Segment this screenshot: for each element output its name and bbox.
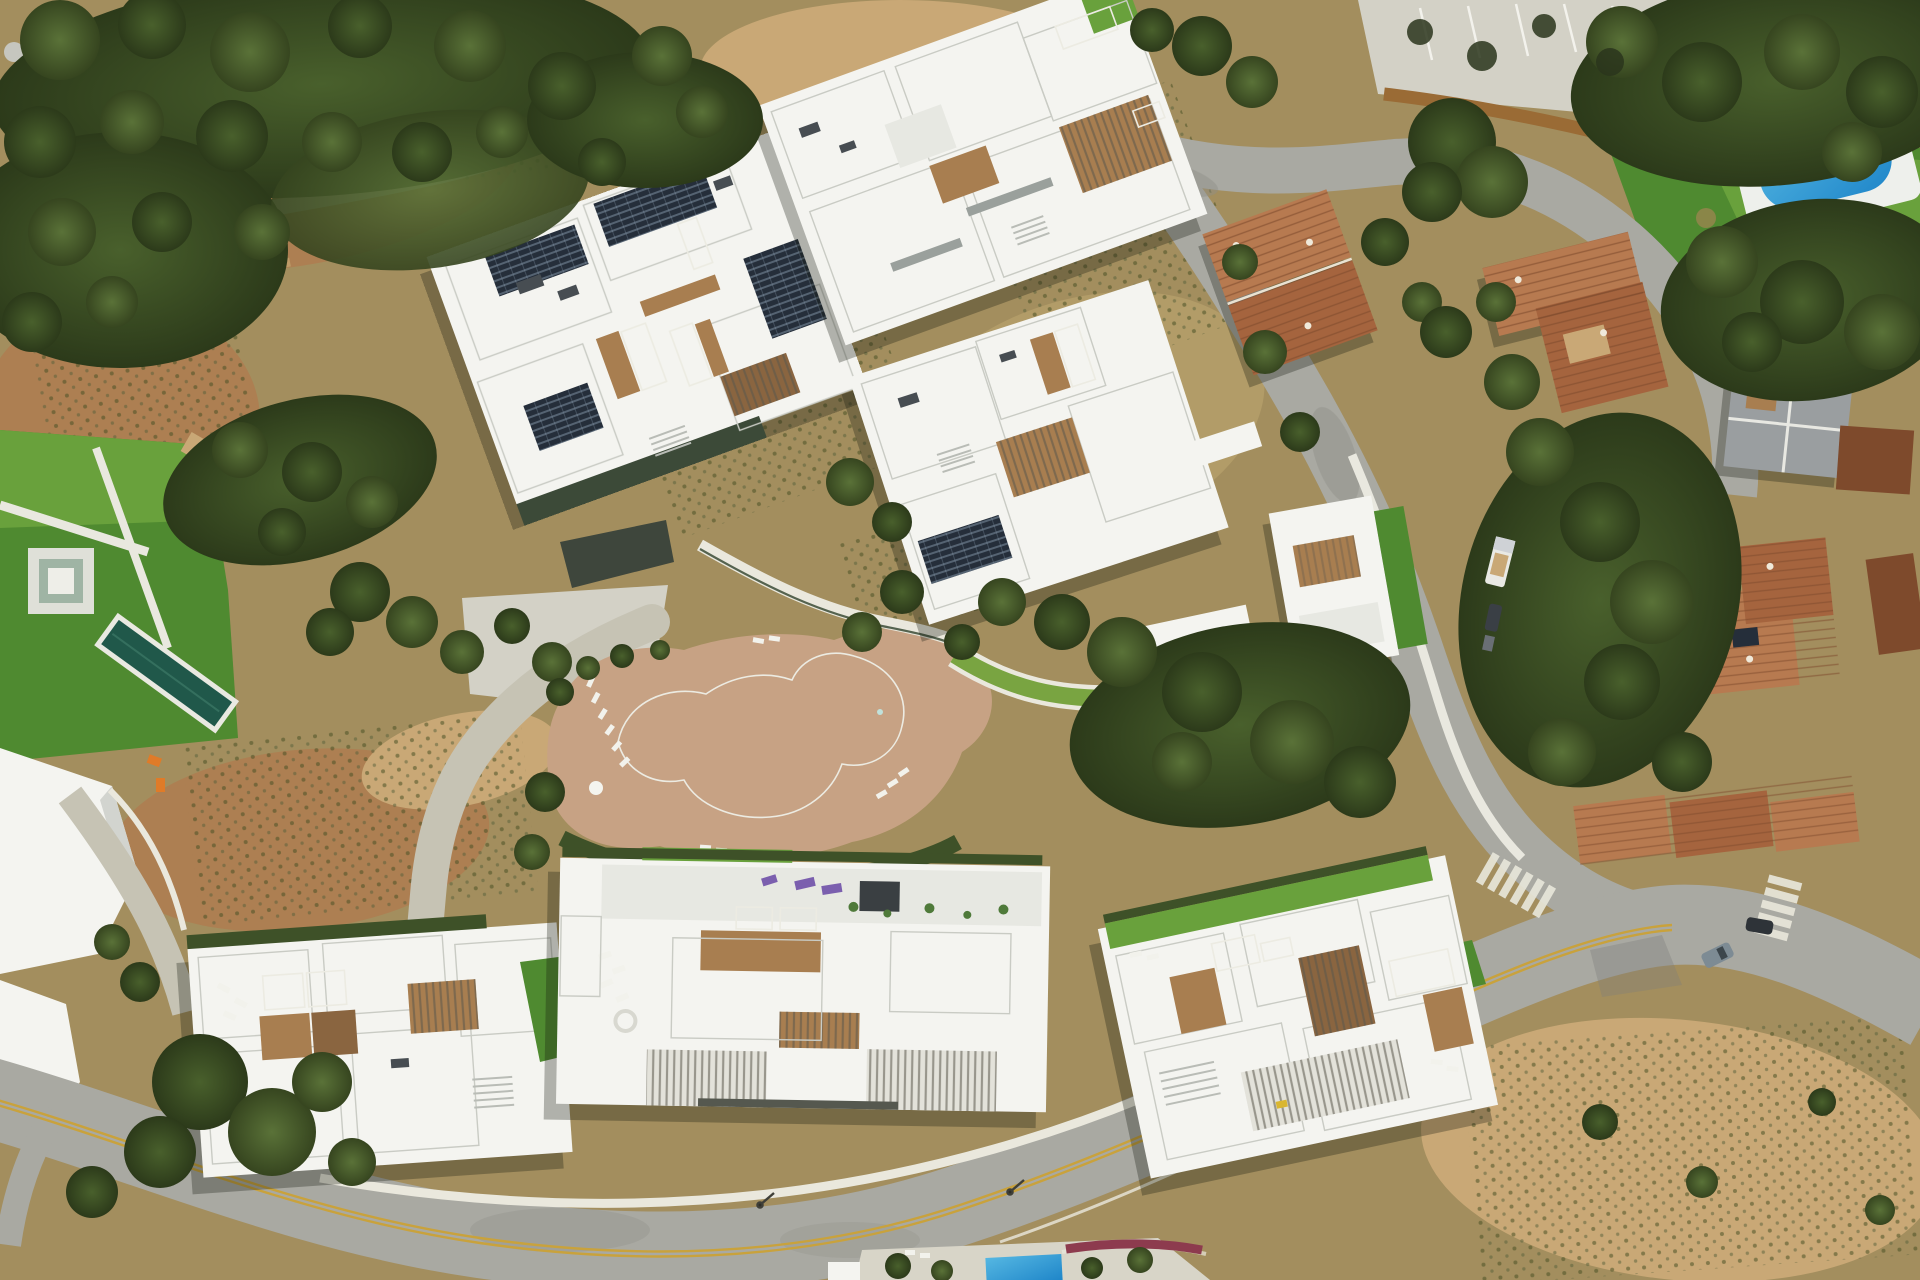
roof-furniture — [859, 881, 900, 912]
villa-east-fragment — [1836, 425, 1914, 494]
roof-deck — [700, 930, 821, 972]
aerial-photo-stage: Aerial drone photograph, looking straigh… — [0, 0, 1920, 1280]
orange-equipment-2 — [156, 778, 165, 792]
small-pool — [985, 1254, 1062, 1280]
umbrella — [589, 781, 603, 795]
roof-deck — [259, 1013, 312, 1060]
pool-float — [877, 709, 883, 715]
aerial-photo — [0, 0, 1920, 1280]
sunken-lounge — [28, 548, 94, 614]
block-e — [544, 846, 1051, 1129]
